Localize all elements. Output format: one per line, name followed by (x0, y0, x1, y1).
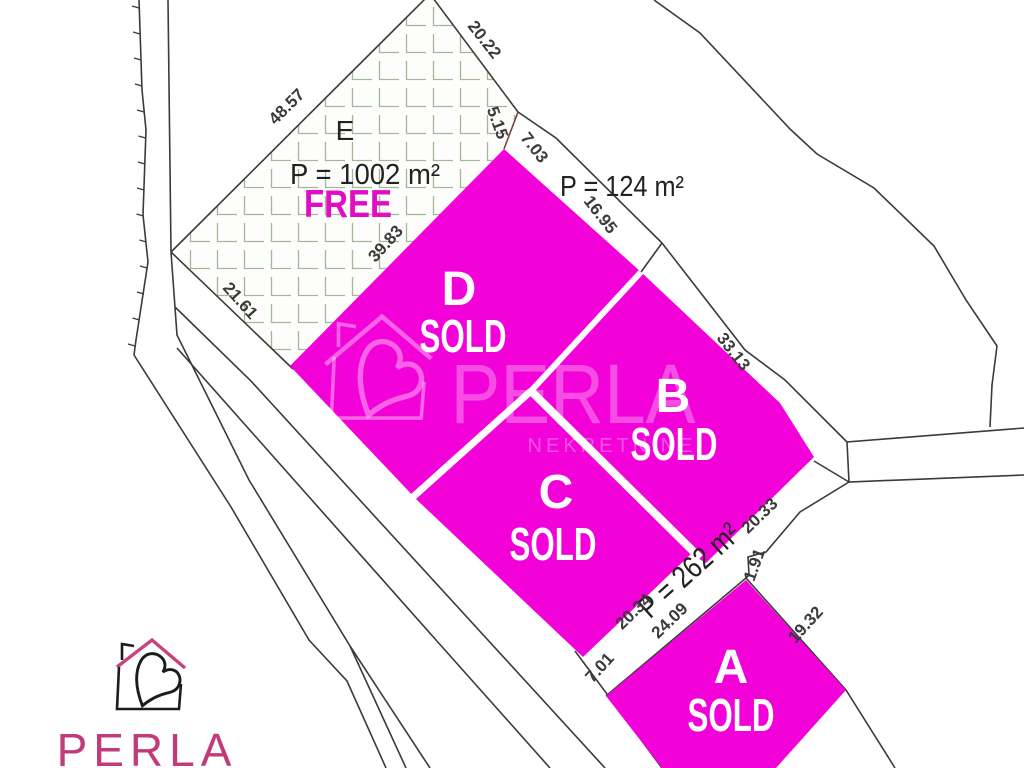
svg-text:FREE: FREE (304, 183, 392, 226)
svg-text:A: A (714, 641, 749, 694)
svg-text:B: B (656, 370, 691, 423)
svg-text:SOLD: SOLD (510, 518, 597, 570)
svg-text:E: E (336, 115, 355, 146)
svg-text:P = 124 m²: P = 124 m² (560, 171, 684, 203)
svg-text:D: D (442, 263, 477, 316)
svg-text:SOLD: SOLD (688, 689, 775, 741)
svg-text:PERLA: PERLA (57, 724, 238, 768)
svg-text:SOLD: SOLD (631, 418, 718, 470)
svg-text:SOLD: SOLD (420, 310, 507, 362)
svg-text:C: C (539, 466, 574, 519)
